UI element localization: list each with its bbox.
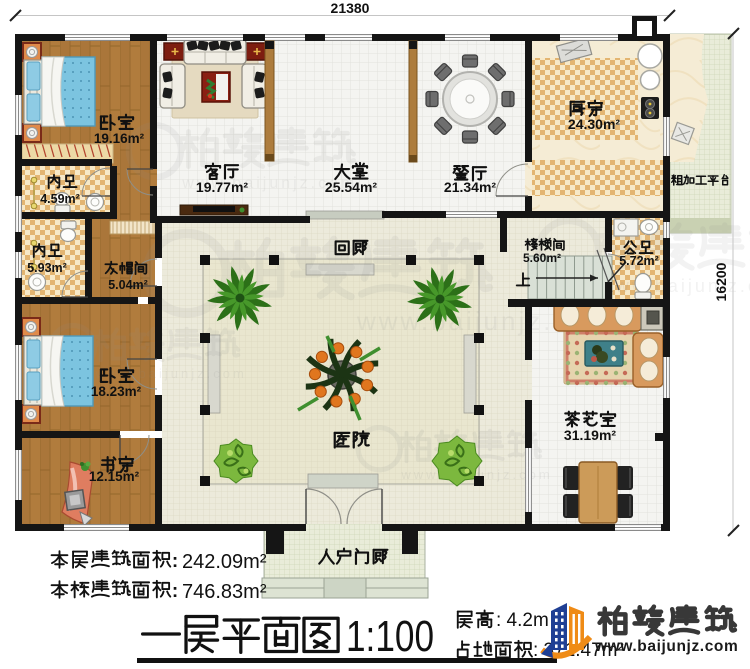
svg-text:31.19m²: 31.19m² xyxy=(564,427,616,443)
svg-text:24.30m²: 24.30m² xyxy=(568,116,620,132)
svg-text:5.93m²: 5.93m² xyxy=(27,261,67,275)
svg-text:18.23m²: 18.23m² xyxy=(91,384,142,399)
svg-text:5.60m²: 5.60m² xyxy=(523,251,561,265)
svg-text:: 4.2m: : 4.2m xyxy=(496,610,549,631)
svg-text:5.72m²: 5.72m² xyxy=(619,254,659,268)
svg-text:1:100: 1:100 xyxy=(346,612,434,661)
svg-text:www.baijunjz.com: www.baijunjz.com xyxy=(594,638,738,655)
svg-text:16200: 16200 xyxy=(713,262,729,301)
svg-text:242.09m²: 242.09m² xyxy=(182,551,267,573)
svg-text:746.83m²: 746.83m² xyxy=(182,581,267,603)
svg-text:5.04m²: 5.04m² xyxy=(108,278,148,292)
svg-text:4.59m²: 4.59m² xyxy=(40,192,80,206)
svg-text:www.baijunjz.com: www.baijunjz.com xyxy=(95,366,247,381)
svg-text::: : xyxy=(172,581,178,602)
svg-text:21.34m²: 21.34m² xyxy=(444,179,496,195)
svg-text:19.16m²: 19.16m² xyxy=(94,131,145,146)
svg-text::: : xyxy=(172,551,178,572)
svg-text:25.54m²: 25.54m² xyxy=(325,179,377,195)
svg-text:12.15m²: 12.15m² xyxy=(89,469,140,484)
svg-text:19.77m²: 19.77m² xyxy=(196,179,248,195)
svg-text:21380: 21380 xyxy=(331,0,370,16)
